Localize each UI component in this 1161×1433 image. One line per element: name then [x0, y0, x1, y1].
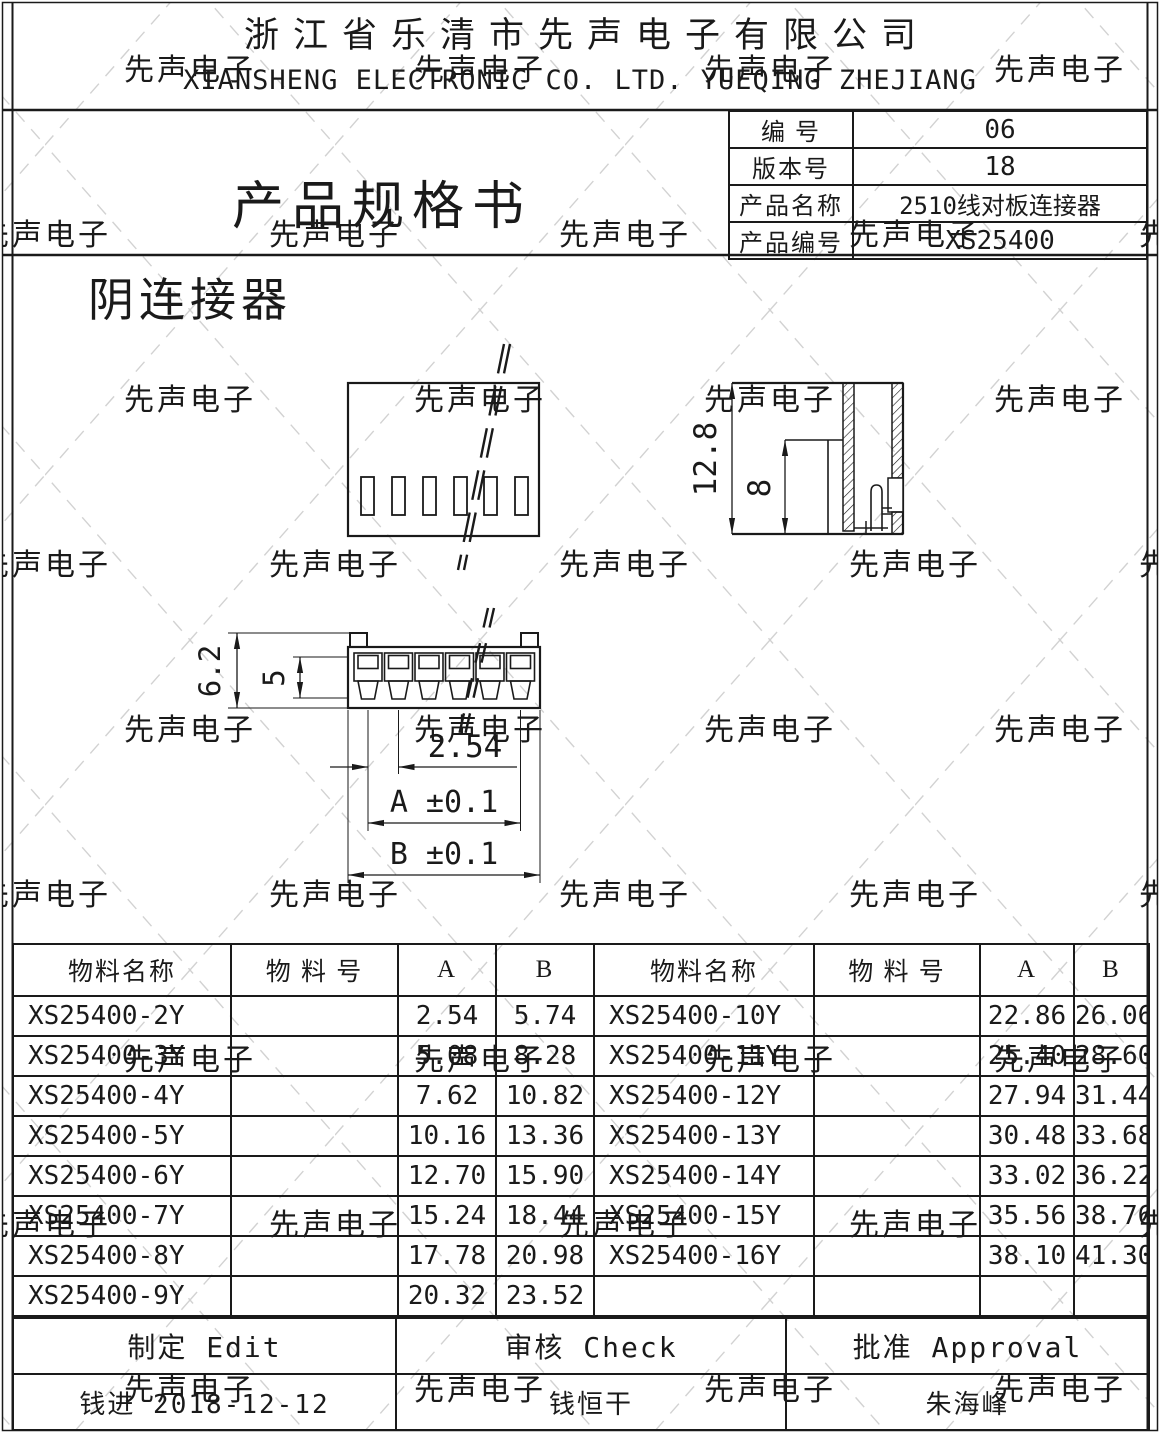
- part-name: XS25400-2Y: [13, 996, 231, 1036]
- part-no: [231, 1116, 398, 1156]
- part-no: [814, 1276, 980, 1316]
- dim-b-value: [1074, 1276, 1149, 1316]
- part-name: XS25400-7Y: [13, 1196, 231, 1236]
- dim-b-value: 26.06: [1074, 996, 1149, 1036]
- dim-a-value: 15.24: [398, 1196, 496, 1236]
- table-row: 编 号 06: [729, 111, 1147, 148]
- col-header: 物 料 号: [814, 944, 980, 996]
- part-no: [814, 1036, 980, 1076]
- dim-a-value: 22.86: [980, 996, 1074, 1036]
- table-row: 产品编号 XS25400: [729, 222, 1147, 259]
- part-name: XS25400-6Y: [13, 1156, 231, 1196]
- page-title: 产品规格书: [32, 164, 732, 239]
- approval-label: 批准 Approval: [786, 1318, 1149, 1374]
- part-no: [231, 1276, 398, 1316]
- doc-info-table: 编 号 06 版本号 18 产品名称 2510线对板连接器 产品编号 XS254…: [728, 110, 1148, 260]
- dim-b-value: 23.52: [496, 1276, 594, 1316]
- col-header: B: [496, 944, 594, 996]
- part-name: XS25400-8Y: [13, 1236, 231, 1276]
- part-no: [231, 1236, 398, 1276]
- edit-signature: 钱进 2018-12-12: [13, 1374, 396, 1430]
- part-name: [594, 1276, 814, 1316]
- part-no: [231, 1196, 398, 1236]
- table-row: 版本号 18: [729, 148, 1147, 185]
- spec-sheet-page: 先声电子 先声电子 先声电子: [0, 0, 1161, 1433]
- part-name: XS25400-9Y: [13, 1276, 231, 1316]
- dim-b-value: 31.44: [1074, 1076, 1149, 1116]
- dim-a-value: 25.40: [980, 1036, 1074, 1076]
- info-value: 18: [853, 148, 1147, 185]
- dim-b-value: 38.76: [1074, 1196, 1149, 1236]
- part-no: [814, 1116, 980, 1156]
- part-name: XS25400-12Y: [594, 1076, 814, 1116]
- dim-a-value: [980, 1276, 1074, 1316]
- table-row: 制定 Edit 审核 Check 批准 Approval: [13, 1318, 1149, 1374]
- part-no: [814, 1236, 980, 1276]
- info-value: 2510线对板连接器: [853, 185, 1147, 222]
- dim-a: A ±0.1: [390, 785, 498, 820]
- col-header: A: [980, 944, 1074, 996]
- approval-signature: 朱海峰: [786, 1374, 1149, 1430]
- info-label: 产品编号: [729, 222, 853, 259]
- dim-b-value: 10.82: [496, 1076, 594, 1116]
- table-row: XS25400-6Y 12.70 15.90 XS25400-14Y 33.02…: [13, 1156, 1149, 1196]
- company-name-cn: 浙江省乐清市先声电子有限公司: [12, 10, 1148, 62]
- table-row: 钱进 2018-12-12 钱恒干 朱海峰: [13, 1374, 1149, 1430]
- table-row: XS25400-2Y 2.54 5.74 XS25400-10Y 22.86 2…: [13, 996, 1149, 1036]
- table-row: 产品名称 2510线对板连接器: [729, 185, 1147, 222]
- edit-label: 制定 Edit: [13, 1318, 396, 1374]
- info-label: 产品名称: [729, 185, 853, 222]
- part-no: [814, 1196, 980, 1236]
- dim-b-value: 33.68: [1074, 1116, 1149, 1156]
- dim-a-value: 12.70: [398, 1156, 496, 1196]
- check-signature: 钱恒干: [396, 1374, 786, 1430]
- part-no: [231, 1076, 398, 1116]
- table-row: XS25400-4Y 7.62 10.82 XS25400-12Y 27.94 …: [13, 1076, 1149, 1116]
- part-name: XS25400-5Y: [13, 1116, 231, 1156]
- col-header: 物 料 号: [231, 944, 398, 996]
- dim-a-value: 2.54: [398, 996, 496, 1036]
- dim-a-value: 7.62: [398, 1076, 496, 1116]
- info-value: XS25400: [853, 222, 1147, 259]
- part-name: XS25400-3Y: [13, 1036, 231, 1076]
- dim-b-value: 36.22: [1074, 1156, 1149, 1196]
- col-header: 物料名称: [13, 944, 231, 996]
- dim-a-value: 10.16: [398, 1116, 496, 1156]
- part-no: [814, 996, 980, 1036]
- dim-b-value: 41.30: [1074, 1236, 1149, 1276]
- part-no: [814, 1076, 980, 1116]
- part-no: [231, 1036, 398, 1076]
- dim-b-value: 28.60: [1074, 1036, 1149, 1076]
- dim-a-value: 35.56: [980, 1196, 1074, 1236]
- dim-b-value: 5.74: [496, 996, 594, 1036]
- part-no: [231, 1156, 398, 1196]
- info-value: 06: [853, 111, 1147, 148]
- check-label: 审核 Check: [396, 1318, 786, 1374]
- table-row: XS25400-7Y 15.24 18.44 XS25400-15Y 35.56…: [13, 1196, 1149, 1236]
- dim-b-value: 13.36: [496, 1116, 594, 1156]
- dim-a-value: 33.02: [980, 1156, 1074, 1196]
- table-row: XS25400-8Y 17.78 20.98 XS25400-16Y 38.10…: [13, 1236, 1149, 1276]
- part-name: XS25400-16Y: [594, 1236, 814, 1276]
- table-row: XS25400-5Y 10.16 13.36 XS25400-13Y 30.48…: [13, 1116, 1149, 1156]
- part-name: XS25400-10Y: [594, 996, 814, 1036]
- dim-b-value: 18.44: [496, 1196, 594, 1236]
- table-header-row: 物料名称 物 料 号 A B 物料名称 物 料 号 A B: [13, 944, 1149, 996]
- part-name: XS25400-13Y: [594, 1116, 814, 1156]
- dim-b-value: 15.90: [496, 1156, 594, 1196]
- col-header: 物料名称: [594, 944, 814, 996]
- part-name: XS25400-4Y: [13, 1076, 231, 1116]
- dim-a-value: 30.48: [980, 1116, 1074, 1156]
- part-no: [231, 996, 398, 1036]
- dim-a-value: 17.78: [398, 1236, 496, 1276]
- signature-table: 制定 Edit 审核 Check 批准 Approval 钱进 2018-12-…: [12, 1317, 1150, 1431]
- dim-inner-width: 5: [257, 669, 291, 686]
- col-header: B: [1074, 944, 1149, 996]
- dim-inner-height: 8: [742, 479, 778, 498]
- company-name-en: XIANSHENG ELECTRONIC CO. LTD. YUEQING ZH…: [12, 62, 1148, 100]
- part-name: XS25400-15Y: [594, 1196, 814, 1236]
- dim-b: B ±0.1: [390, 837, 498, 872]
- col-header: A: [398, 944, 496, 996]
- info-label: 版本号: [729, 148, 853, 185]
- dim-a-value: 5.08: [398, 1036, 496, 1076]
- part-name: XS25400-11Y: [594, 1036, 814, 1076]
- parts-table: 物料名称 物 料 号 A B 物料名称 物 料 号 A B XS25400-2Y…: [12, 943, 1150, 1317]
- info-label: 编 号: [729, 111, 853, 148]
- dim-a-value: 20.32: [398, 1276, 496, 1316]
- dim-a-value: 38.10: [980, 1236, 1074, 1276]
- dim-pitch: 2.54: [428, 729, 503, 765]
- dim-b-value: 20.98: [496, 1236, 594, 1276]
- dim-overall-width: 6.2: [193, 645, 227, 697]
- table-row: XS25400-9Y 20.32 23.52: [13, 1276, 1149, 1316]
- dim-b-value: 8.28: [496, 1036, 594, 1076]
- dim-a-value: 27.94: [980, 1076, 1074, 1116]
- part-name: XS25400-14Y: [594, 1156, 814, 1196]
- part-no: [814, 1156, 980, 1196]
- dim-overall-height: 12.8: [688, 422, 724, 497]
- drawing-section-label: 阴连接器: [88, 264, 292, 330]
- table-row: XS25400-3Y 5.08 8.28 XS25400-11Y 25.40 2…: [13, 1036, 1149, 1076]
